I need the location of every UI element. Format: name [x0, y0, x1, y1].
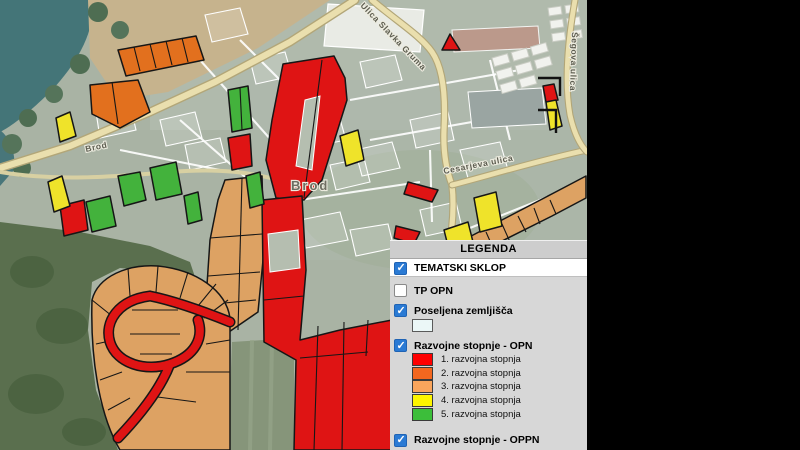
legend-entry-stage2: 2. razvojna stopnja [412, 368, 587, 380]
checkbox-razvojne-stopnje-opn[interactable] [394, 339, 407, 352]
checkbox-razvojne-stopnje-oppn[interactable] [394, 434, 407, 447]
legend-row-tp-opn[interactable]: TP OPN [390, 284, 587, 297]
legend-entry-stage3: 3. razvojna stopnja [412, 381, 587, 393]
legend-panel: LEGENDA TEMATSKI SKLOP TP OPN Poseljena … [390, 240, 587, 450]
district-label-brod: Brod [291, 178, 329, 193]
legend-entry-label: 3. razvojna stopnja [441, 381, 521, 392]
legend-entry-stage5: 5. razvojna stopnja [412, 408, 587, 420]
swatch-stage1 [412, 353, 433, 366]
legend-label: TEMATSKI SKLOP [414, 262, 506, 274]
swatch-stage4 [412, 394, 433, 407]
swatch-stage3 [412, 380, 433, 393]
checkbox-tp-opn[interactable] [394, 284, 407, 297]
swatch-poseljena-zemljisca [412, 319, 433, 332]
legend-entry-stage4: 4. razvojna stopnja [412, 395, 587, 407]
swatch-stage5 [412, 408, 433, 421]
legend-entry-label: 1. razvojna stopnja [441, 354, 521, 365]
legend-label: Poseljena zemljišča [414, 305, 513, 317]
legend-label: Razvojne stopnje - OPPN [414, 434, 539, 446]
legend-label: Razvojne stopnje - OPN [414, 340, 532, 352]
legend-label: TP OPN [414, 285, 453, 297]
swatch-stage2 [412, 367, 433, 380]
legend-opn-entries: 1. razvojna stopnja 2. razvojna stopnja … [390, 354, 587, 420]
checkbox-tematski-sklop[interactable] [394, 262, 407, 275]
legend-row-razvojne-stopnje-opn[interactable]: Razvojne stopnje - OPN [390, 339, 587, 352]
legend-row-razvojne-stopnje-oppn[interactable]: Razvojne stopnje - OPPN [390, 434, 587, 447]
app-window: Brod Brod Ulica Slavka Gruma Cesarjeva u… [0, 0, 800, 450]
fields [228, 338, 294, 450]
legend-entry-label: 4. razvojna stopnja [441, 395, 521, 406]
legend-title: LEGENDA [390, 241, 587, 259]
checkbox-poseljena-zemljisca[interactable] [394, 304, 407, 317]
legend-row-tematski-sklop[interactable]: TEMATSKI SKLOP [390, 259, 587, 277]
legend-entry-stage1: 1. razvojna stopnja [412, 354, 587, 366]
street-label-segova: Šegova ulica [568, 32, 581, 92]
legend-entry-label: 2. razvojna stopnja [441, 368, 521, 379]
legend-entry-label: 5. razvojna stopnja [441, 409, 521, 420]
legend-row-poseljena-zemljisca[interactable]: Poseljena zemljišča [390, 304, 587, 317]
